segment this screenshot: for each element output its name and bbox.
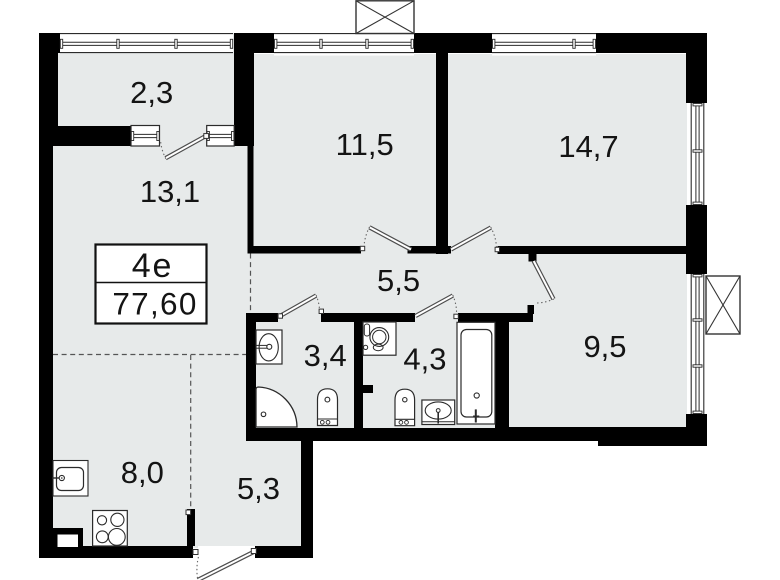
svg-text:4e: 4e <box>132 247 173 285</box>
svg-text:77,60: 77,60 <box>112 285 197 321</box>
svg-text:9,5: 9,5 <box>583 329 626 364</box>
svg-text:4,3: 4,3 <box>403 342 446 377</box>
svg-text:3,4: 3,4 <box>304 338 347 373</box>
svg-text:5,3: 5,3 <box>237 471 280 506</box>
svg-text:14,7: 14,7 <box>558 129 618 164</box>
svg-text:8,0: 8,0 <box>121 455 164 490</box>
svg-text:2,3: 2,3 <box>130 75 173 110</box>
svg-text:5,5: 5,5 <box>377 263 420 298</box>
svg-text:11,5: 11,5 <box>336 127 394 162</box>
svg-text:13,1: 13,1 <box>140 174 200 209</box>
